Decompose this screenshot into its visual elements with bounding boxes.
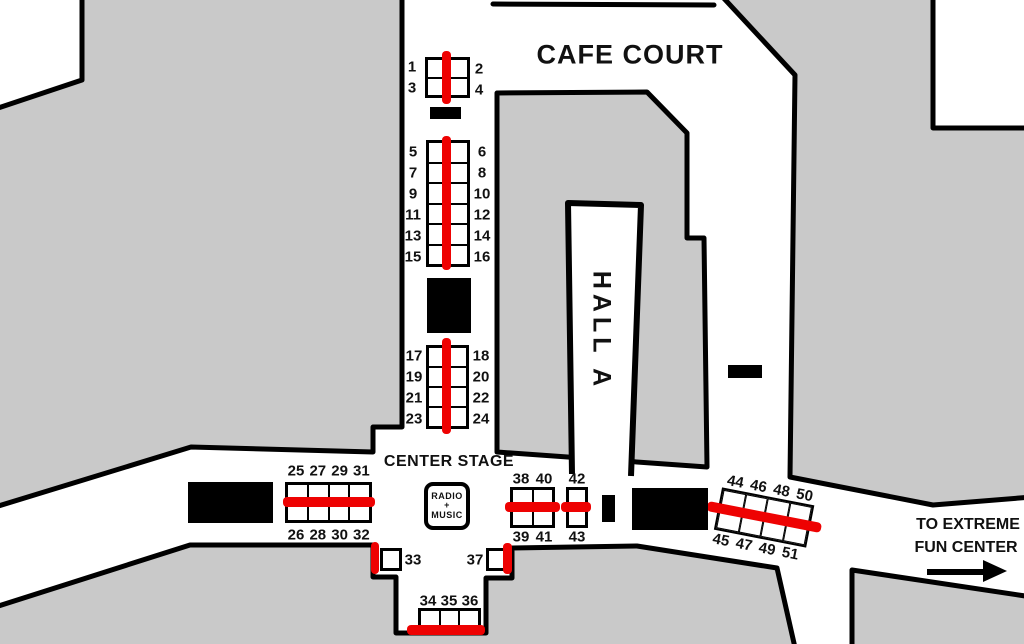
booth-number-label: 49	[757, 539, 777, 559]
booth-number-label: 44	[726, 472, 746, 492]
gray-area-northwest	[0, 0, 402, 508]
red-line-38-41	[505, 502, 560, 512]
booth-number-label: 6	[478, 144, 486, 161]
booth-number-label: 37	[467, 552, 484, 569]
red-line-5-16	[442, 136, 451, 270]
booth-number-label: 32	[353, 527, 370, 544]
booth-number-label: 26	[288, 527, 305, 544]
booth-number-label: 27	[309, 463, 326, 480]
booth-number-label: 15	[405, 249, 422, 266]
booth-number-label: 41	[536, 529, 553, 546]
booth-number-label: 35	[441, 593, 458, 610]
booth-number-label: 12	[474, 207, 491, 224]
right-arrow-icon	[927, 569, 987, 575]
booth-number-label: 14	[474, 228, 491, 245]
floor-plan-base	[0, 0, 1024, 644]
red-line-34-36	[407, 625, 485, 635]
booth-number-label: 17	[406, 348, 423, 365]
booth-number-label: 28	[309, 527, 326, 544]
booth-number-label: 51	[780, 544, 800, 564]
red-line-37	[503, 543, 512, 574]
booth-number-label: 3	[408, 80, 416, 97]
black-bar-center-small	[602, 495, 615, 522]
booth-cell	[448, 183, 468, 204]
cafe-court-title: CAFE COURT	[537, 40, 724, 71]
booth-cell	[448, 224, 468, 245]
booth-number-label: 21	[406, 390, 423, 407]
booth-number-label: 48	[772, 481, 792, 501]
booth-number-label: 33	[405, 552, 422, 569]
black-block-east	[632, 488, 708, 530]
booth-cell	[448, 163, 468, 184]
hall-a-label: HALL A	[587, 271, 616, 391]
booth-number-label: 45	[711, 530, 731, 550]
booth-number-label: 16	[474, 249, 491, 266]
booth-number-label: 24	[473, 411, 490, 428]
black-block-mid	[427, 278, 471, 333]
black-bar-north	[430, 107, 461, 119]
booth-number-label: 29	[331, 463, 348, 480]
booth-number-label: 20	[473, 369, 490, 386]
right-arrow-icon	[983, 560, 1007, 582]
booth-number-label: 2	[475, 61, 483, 78]
booth-number-label: 1	[408, 59, 416, 76]
booth-cell	[382, 550, 400, 569]
to-extreme-fun-center-line2: FUN CENTER	[914, 539, 1017, 557]
booth-number-label: 13	[405, 228, 422, 245]
booth-cell	[448, 245, 468, 266]
black-bar-hall-east	[728, 365, 762, 378]
booth-number-label: 5	[409, 144, 417, 161]
booth-number-label: 34	[420, 593, 437, 610]
booth-cell	[448, 204, 468, 225]
booth-number-label: 43	[569, 529, 586, 546]
black-block-west	[188, 482, 273, 523]
floor-plan: CAFE COURT HALL A CENTER STAGE RADIO + M…	[0, 0, 1024, 644]
center-stage-label: CENTER STAGE	[384, 453, 514, 471]
booth-number-label: 25	[288, 463, 305, 480]
booth-number-label: 50	[795, 485, 815, 505]
red-line-25-32	[283, 497, 375, 507]
booth-number-label: 30	[331, 527, 348, 544]
booth-number-label: 42	[569, 471, 586, 488]
booth-cell	[448, 142, 468, 163]
north-wall-line	[493, 4, 714, 5]
radio-line3: MUSIC	[431, 511, 463, 520]
booth-number-label: 10	[474, 186, 491, 203]
booth-number-label: 19	[406, 369, 423, 386]
booth-33	[380, 548, 402, 571]
booth-number-label: 31	[353, 463, 370, 480]
booth-number-label: 36	[462, 593, 479, 610]
booth-number-label: 40	[536, 471, 553, 488]
booth-number-label: 7	[409, 165, 417, 182]
booth-number-label: 38	[513, 471, 530, 488]
booth-number-label: 9	[409, 186, 417, 203]
radio-music-booth: RADIO + MUSIC	[424, 482, 470, 530]
red-line-33	[371, 542, 379, 574]
booth-number-label: 4	[475, 82, 483, 99]
red-line-1-4	[442, 51, 451, 104]
booth-number-label: 23	[406, 411, 423, 428]
booth-number-label: 46	[749, 476, 769, 496]
to-extreme-fun-center-line1: TO EXTREME	[916, 516, 1020, 534]
booth-number-label: 22	[473, 390, 490, 407]
booth-number-label: 39	[513, 529, 530, 546]
booth-number-label: 8	[478, 165, 486, 182]
booth-number-label: 18	[473, 348, 490, 365]
red-line-17-24	[442, 338, 451, 434]
booth-number-label: 47	[734, 535, 754, 555]
gray-area-northeast	[718, 0, 1024, 505]
red-line-42-43	[561, 502, 591, 512]
booth-number-label: 11	[405, 207, 421, 224]
